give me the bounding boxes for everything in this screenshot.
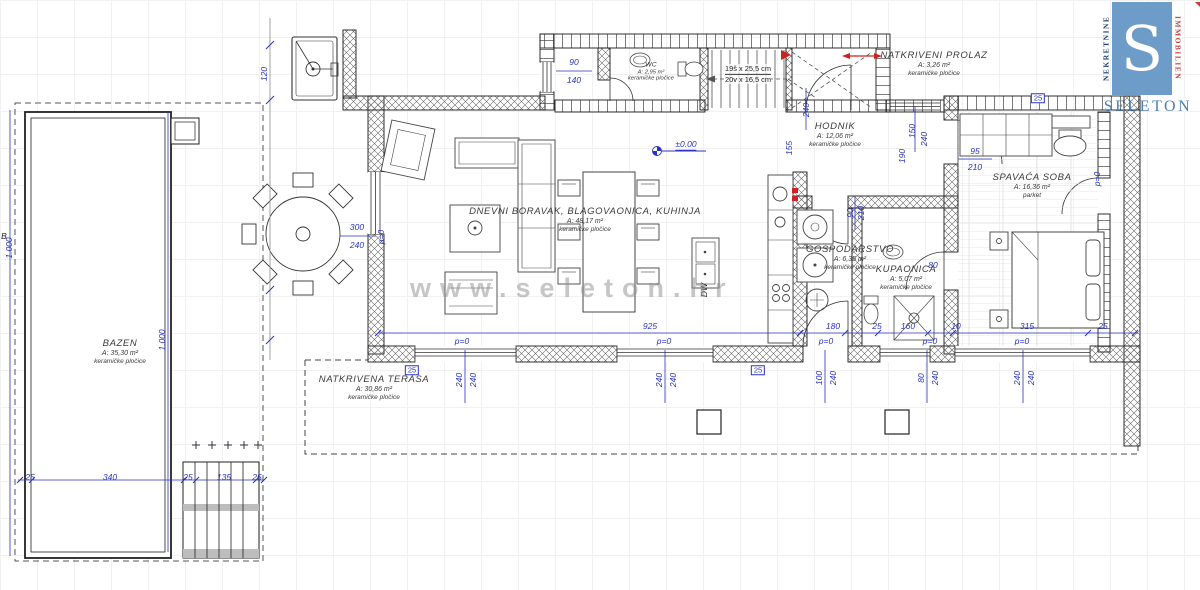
seleton-logo: NEKRETNINE S IMMOBILIEN SELETON <box>1100 2 1196 116</box>
pool <box>15 103 263 561</box>
logo-mark: NEKRETNINE S IMMOBILIEN <box>1100 2 1196 95</box>
deck-plus-marks <box>192 441 262 449</box>
watermark-text: www.seleton.hr <box>410 273 735 304</box>
bed <box>1012 232 1104 328</box>
bathroom-fixtures <box>864 245 934 340</box>
logo-brand-text: SELETON <box>1100 98 1196 116</box>
pool-deck-grid <box>183 462 259 558</box>
fireplace <box>381 120 435 180</box>
logo-monogram-square: S <box>1112 2 1172 95</box>
terrace-columns <box>697 410 909 434</box>
bedroom-furniture <box>958 112 1104 346</box>
wc-fixtures <box>630 53 703 76</box>
stairs-note-line2: 20v x 16,5 cm <box>725 75 771 85</box>
logo-monogram-letter: S <box>1121 18 1163 80</box>
terrace-boundary <box>305 360 1138 454</box>
wardrobe <box>960 114 1052 156</box>
stairs-note-line1: 19š x 25,5 cm <box>725 64 771 75</box>
terrace-dining-set <box>242 173 353 295</box>
logo-immobilien-text: IMMOBILIEN <box>1172 2 1184 95</box>
logo-corner-triangle-icon <box>1195 2 1200 16</box>
kitchen <box>692 175 793 343</box>
elevation-marker <box>653 147 707 156</box>
outdoor-shower <box>292 37 338 100</box>
logo-nekretnine-text: NEKRETNINE <box>1100 2 1112 95</box>
floor-plan-canvas: BAZENA: 35,30 m²keramičke pločiceNATKRIV… <box>0 0 1200 590</box>
stairs-note: 19š x 25,5 cm 20v x 16,5 cm <box>725 64 771 84</box>
pool-ladder <box>171 118 199 144</box>
